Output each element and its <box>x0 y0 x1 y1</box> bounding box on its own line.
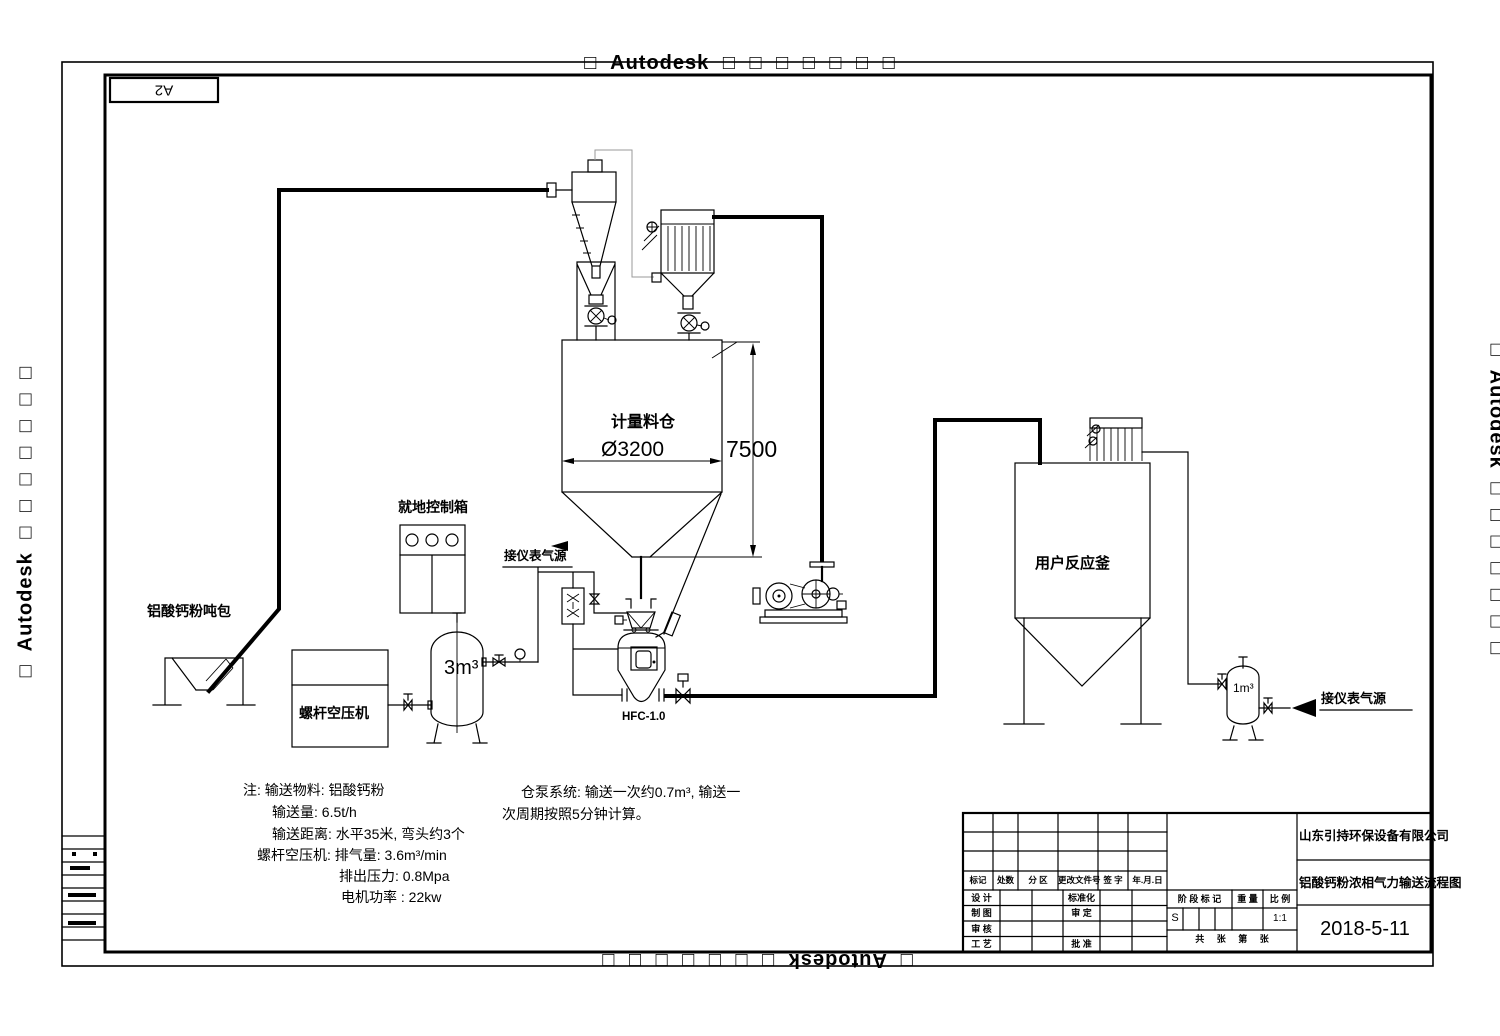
company-name: 山东引持环保设备有限公司 <box>1299 830 1431 844</box>
note-line: 排出压力: 0.8Mpa <box>339 869 449 884</box>
cyclone-separator <box>572 150 654 278</box>
tb-weight: 重 量 <box>1232 895 1263 905</box>
control-box-label: 就地控制箱 <box>398 500 468 515</box>
local-control-box <box>400 525 465 613</box>
note-line: 输送距离: 水平35米, 弯头约3个 <box>272 827 465 842</box>
tb-stage-value: S <box>1167 912 1183 924</box>
tb-row-standard: 标准化 <box>1063 894 1100 904</box>
tb-header-zone: 分 区 <box>1018 876 1058 885</box>
sheet-frame <box>62 62 1433 966</box>
tb-header-sign: 签 字 <box>1098 876 1128 885</box>
instrument-air-piping <box>482 541 627 695</box>
binding-strip <box>62 836 105 940</box>
ton-bag-label: 铝酸钙粉吨包 <box>147 604 231 619</box>
tb-header-doc: 更改文件号 <box>1058 876 1098 885</box>
watermark-left: □ Autodesk □ □ □ □ □ □ □ <box>15 362 38 682</box>
tb-header-count: 处数 <box>993 876 1018 885</box>
tb-sheets: 共 张 第 张 <box>1167 935 1297 945</box>
sheet-size-label: A2 <box>110 81 218 98</box>
reactor-label: 用户反应釜 <box>1035 556 1110 573</box>
instrument-air-label-right: 接仪表气源 <box>1321 692 1386 706</box>
silo-name-label: 计量料仓 <box>611 414 675 432</box>
silo-diameter-label: Ø3200 <box>601 438 664 461</box>
diagram-linework <box>0 0 1500 1036</box>
reactor-vessel <box>1004 463 1161 724</box>
watermark-top: □ Autodesk □ □ □ □ □ □ □ <box>580 52 900 75</box>
reactor-filter <box>1085 418 1226 689</box>
tb-row-craft: 工 艺 <box>963 940 1000 950</box>
watermark-right: □ Autodesk □ □ □ □ □ □ □ <box>1485 340 1500 660</box>
compressor-label: 螺杆空压机 <box>299 706 369 721</box>
drawing-title: 铝酸钙粉浓相气力输送流程图 <box>1299 877 1431 891</box>
cyclone-hopper-rotary-valve <box>577 262 616 340</box>
instrument-air-label-left: 接仪表气源 <box>504 550 567 564</box>
tb-header-mark: 标记 <box>963 876 993 885</box>
suction-pipe <box>209 183 572 691</box>
tb-row-check: 审 核 <box>963 925 1000 935</box>
cad-drawing: □ Autodesk □ □ □ □ □ □ □ □ Autodesk □ □ … <box>0 0 1500 1036</box>
pump-note-line: 仓泵系统: 输送一次约0.7m³, 输送一 <box>521 785 740 800</box>
silo-height-label: 7500 <box>726 437 777 462</box>
tb-row-design: 设 计 <box>963 894 1000 904</box>
tb-row-draft: 制 图 <box>963 909 1000 919</box>
tb-stage-mark: 阶 段 标 记 <box>1167 895 1232 905</box>
note-line: 输送量: 6.5t/h <box>272 805 357 820</box>
note-line: 螺杆空压机: 排气量: 3.6m³/min <box>257 848 447 863</box>
tb-scale: 比 例 <box>1263 895 1297 905</box>
bin-pump-model-label: HFC-1.0 <box>622 711 665 724</box>
tb-header-date: 年.月.日 <box>1128 876 1167 885</box>
dust-collector <box>642 210 822 560</box>
vacuum-pump <box>753 562 847 623</box>
note-line: 电机功率 : 22kw <box>341 890 441 905</box>
air-tank-volume-label: 3m³ <box>444 657 478 679</box>
small-tank-volume-label: 1m³ <box>1233 682 1254 695</box>
pump-note-line: 次周期按照5分钟计算。 <box>502 807 650 822</box>
watermark-bottom: □ Autodesk □ □ □ □ □ □ □ <box>597 948 917 971</box>
tb-row-verify: 审 定 <box>1063 909 1100 919</box>
note-line: 注: 输送物料: 铝酸钙粉 <box>243 783 385 798</box>
screw-compressor <box>292 650 431 747</box>
drawing-date: 2018-5-11 <box>1299 918 1431 940</box>
tb-scale-value: 1:1 <box>1263 913 1297 924</box>
measuring-silo <box>562 340 722 637</box>
tb-row-approve: 批 准 <box>1063 940 1100 950</box>
ton-bag-hopper <box>153 658 255 705</box>
